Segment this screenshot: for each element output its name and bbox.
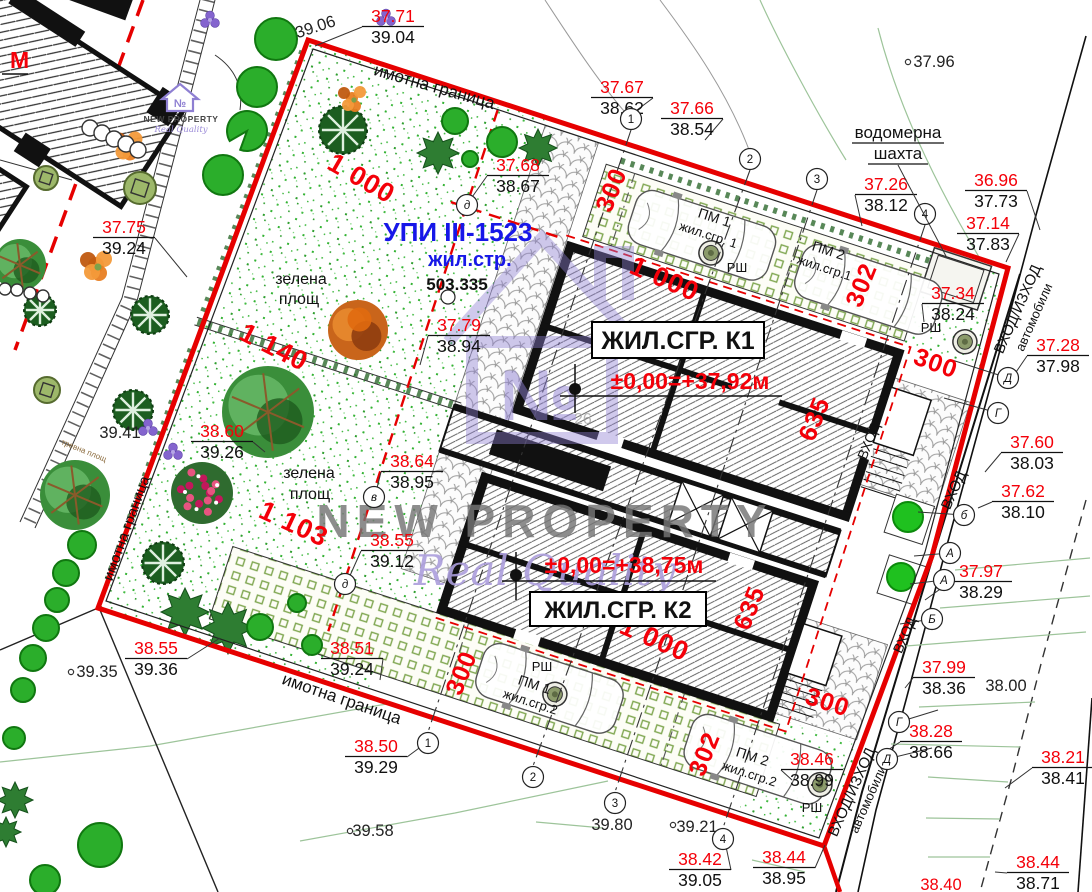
spot-elevation-pair: 37.9738.29 xyxy=(950,561,1012,602)
spot-elevation-pair: 37.7539.24 xyxy=(93,217,155,258)
svg-text:д: д xyxy=(342,579,348,591)
svg-text:37.26: 37.26 xyxy=(864,174,908,194)
axis-marker: 1 xyxy=(418,733,439,754)
svg-text:38.41: 38.41 xyxy=(1041,768,1085,788)
spot-elevation-pair: 37.2638.12 xyxy=(855,174,917,215)
np-logo-monogram: № xyxy=(174,98,186,110)
svg-text:37.60: 37.60 xyxy=(1010,432,1054,452)
circle-tree xyxy=(288,594,306,612)
svg-text:3: 3 xyxy=(612,798,618,810)
olive-tree xyxy=(124,172,156,204)
circle-tree xyxy=(11,678,35,702)
svg-text:38.36: 38.36 xyxy=(922,678,966,698)
spot-elevation-pair: 37.6238.10 xyxy=(992,481,1054,522)
upi-label: УПИ III-1523 xyxy=(384,217,533,247)
building-k2-label: ЖИЛ.СГР. К2 xyxy=(530,592,706,626)
spot-elevation-pair: 38.5539.36 xyxy=(125,638,187,679)
axis-marker: д xyxy=(335,574,356,595)
svg-text:38.94: 38.94 xyxy=(437,336,481,356)
spot-elevation: 39.80 xyxy=(591,816,632,834)
circle-tree xyxy=(68,531,96,559)
svg-text:38.12: 38.12 xyxy=(864,195,908,215)
circle-tree xyxy=(237,67,277,107)
svg-text:38.66: 38.66 xyxy=(909,742,953,762)
circle-tree xyxy=(78,823,122,867)
circle-tree xyxy=(3,727,25,749)
axis-marker: 2 xyxy=(740,149,761,170)
svg-text:37.83: 37.83 xyxy=(966,234,1010,254)
svg-text:37.99: 37.99 xyxy=(922,657,966,677)
svg-text:39.36: 39.36 xyxy=(134,659,178,679)
svg-text:37.34: 37.34 xyxy=(931,283,975,303)
svg-text:38.28: 38.28 xyxy=(909,721,953,741)
k1-level-text: ±0,00=+37,92м xyxy=(611,368,770,394)
axis-marker: 1 xyxy=(621,109,642,130)
spot-elevation-pair: 38.2138.41 xyxy=(1032,747,1092,788)
spot-elevation-pair: 38.4239.05 xyxy=(669,849,731,890)
axis-marker: Д xyxy=(998,368,1019,389)
svg-text:38.00: 38.00 xyxy=(985,677,1026,695)
svg-text:38.71: 38.71 xyxy=(1016,873,1060,892)
axis-marker: в xyxy=(364,487,385,508)
svg-text:б: б xyxy=(961,510,968,522)
spiky-tree xyxy=(417,132,459,174)
conifer-tree xyxy=(131,296,169,334)
ring-tree xyxy=(24,287,36,299)
building-k2-name: ЖИЛ.СГР. К2 xyxy=(543,597,691,624)
svg-text:37.14: 37.14 xyxy=(966,213,1010,233)
map-label: площ xyxy=(290,486,330,503)
circle-tree xyxy=(20,645,46,671)
site-plan-canvas: № 26 NEW PROPERTY Real Quality 37.7139.0… xyxy=(0,0,1092,892)
map-label: РШ xyxy=(532,659,553,674)
axis-marker: Г xyxy=(988,403,1009,424)
spot-elevation-pair: 37.9938.36 xyxy=(913,657,975,698)
svg-text:39.26: 39.26 xyxy=(200,442,244,462)
svg-text:Д: Д xyxy=(1002,373,1012,385)
bright-tree xyxy=(893,502,923,532)
map-label: зелена xyxy=(283,465,335,482)
olive-tree xyxy=(34,166,58,190)
watermark-number: 26 xyxy=(574,411,592,428)
map-label: РШ xyxy=(921,320,942,335)
building-k1-name: ЖИЛ.СГР. К1 xyxy=(600,327,754,355)
svg-text:39.12: 39.12 xyxy=(370,551,414,571)
svg-text:37.97: 37.97 xyxy=(959,561,1003,581)
axis-marker: 3 xyxy=(807,169,828,190)
spot-elevation-pair: 38.2838.66 xyxy=(900,721,962,762)
svg-text:38.95: 38.95 xyxy=(390,472,434,492)
svg-text:37.96: 37.96 xyxy=(913,53,954,71)
circle-tree xyxy=(33,615,59,641)
circle-tree xyxy=(45,588,69,612)
svg-text:37.79: 37.79 xyxy=(437,315,481,335)
area-label: 503.335 xyxy=(426,275,487,294)
svg-text:38.55: 38.55 xyxy=(134,638,178,658)
zoning-label: жил.стр. xyxy=(427,249,511,271)
circle-tree xyxy=(442,108,468,134)
svg-text:37.71: 37.71 xyxy=(371,6,415,26)
svg-text:38.03: 38.03 xyxy=(1010,453,1054,473)
spot-elevation-pair: 38.4438.95 xyxy=(753,847,815,888)
map-label: площ xyxy=(279,291,319,308)
svg-text:38.50: 38.50 xyxy=(354,736,398,756)
spot-elevation: 38.40 xyxy=(920,876,961,892)
svg-text:39.05: 39.05 xyxy=(678,870,722,890)
axis-marker: А xyxy=(934,570,955,591)
spot-elevation-pair: 37.6838.67 xyxy=(487,155,549,196)
svg-text:39.24: 39.24 xyxy=(102,238,146,258)
np-logo-tagline: Real Quality xyxy=(153,125,207,135)
spot-elevation-pair: 37.2837.98 xyxy=(1027,335,1089,376)
axis-marker: 4 xyxy=(915,204,936,225)
spot-elevation-pair: 37.1437.83 xyxy=(957,213,1019,254)
svg-text:39.35: 39.35 xyxy=(76,663,117,681)
mixed-tree xyxy=(40,460,110,530)
spot-elevation-pair: 38.5539.12 xyxy=(361,530,423,571)
svg-text:39.21: 39.21 xyxy=(676,818,717,836)
circle-tree xyxy=(203,155,243,195)
spot-elevation-pair: 37.6738.62 xyxy=(591,77,653,118)
ring-tree xyxy=(0,283,11,295)
svg-text:38.29: 38.29 xyxy=(959,582,1003,602)
spot-elevation: 39.41 xyxy=(99,424,140,442)
svg-text:Д: Д xyxy=(881,754,891,766)
spot-elevation-pair: 37.7139.04 xyxy=(362,6,424,47)
svg-text:3: 3 xyxy=(814,174,820,186)
svg-text:38.64: 38.64 xyxy=(390,451,434,471)
spot-elevation-pair: 37.7938.94 xyxy=(428,315,490,356)
svg-text:39.04: 39.04 xyxy=(371,27,415,47)
svg-text:38.51: 38.51 xyxy=(330,638,374,658)
axis-marker: 2 xyxy=(523,767,544,788)
circle-tree xyxy=(53,560,79,586)
ring-tree xyxy=(37,290,49,302)
svg-text:38.44: 38.44 xyxy=(1016,852,1060,872)
axis-marker: 4 xyxy=(713,829,734,850)
water-shaft-line2: шахта xyxy=(874,144,923,163)
spot-elevation-pair: 38.4438.71 xyxy=(1007,852,1069,892)
svg-text:38.21: 38.21 xyxy=(1041,747,1085,767)
spot-elevation: 38.00 xyxy=(985,677,1026,695)
bright-tree xyxy=(887,563,915,591)
svg-text:Г: Г xyxy=(995,408,1002,420)
svg-text:4: 4 xyxy=(720,834,727,846)
axis-marker: Г xyxy=(889,712,910,733)
spot-elevation-pair: 37.3438.24 xyxy=(922,283,984,324)
svg-text:38.60: 38.60 xyxy=(200,421,244,441)
spot-elevation-pair: 38.6438.95 xyxy=(381,451,443,492)
circle-tree xyxy=(247,614,273,640)
conifer-tree xyxy=(142,542,184,584)
ring-tree xyxy=(11,284,23,296)
svg-text:38.95: 38.95 xyxy=(762,868,806,888)
svg-text:39.80: 39.80 xyxy=(591,816,632,834)
map-label: РШ xyxy=(802,800,823,815)
k2-level-text: ±0,00=+38,75м xyxy=(545,552,704,578)
svg-text:38.42: 38.42 xyxy=(678,849,722,869)
circle-tree xyxy=(255,18,297,60)
svg-text:37.68: 37.68 xyxy=(496,155,540,175)
svg-text:А: А xyxy=(939,575,948,587)
svg-text:39.58: 39.58 xyxy=(352,822,393,840)
svg-text:в: в xyxy=(371,492,377,504)
svg-text:1: 1 xyxy=(628,114,634,126)
svg-text:36.96: 36.96 xyxy=(974,170,1018,190)
svg-text:Б: Б xyxy=(928,614,936,626)
spot-elevation-pair: 38.5139.24 xyxy=(321,638,383,679)
water-shaft-line1: водомерна xyxy=(855,123,942,142)
svg-text:37.98: 37.98 xyxy=(1036,356,1080,376)
spot-elevation-pair: 38.5039.29 xyxy=(345,736,407,777)
svg-text:4: 4 xyxy=(922,209,929,221)
svg-text:38.67: 38.67 xyxy=(496,176,540,196)
svg-text:37.28: 37.28 xyxy=(1036,335,1080,355)
axis-marker: б xyxy=(954,505,975,526)
axis-marker: 3 xyxy=(605,793,626,814)
corner-m-label: М xyxy=(10,47,29,73)
svg-text:38.55: 38.55 xyxy=(370,530,414,550)
spot-elevation-pair: 38.6039.26 xyxy=(191,421,253,462)
svg-text:39.29: 39.29 xyxy=(354,757,398,777)
svg-text:38.10: 38.10 xyxy=(1001,502,1045,522)
svg-text:38.44: 38.44 xyxy=(762,847,806,867)
svg-text:1: 1 xyxy=(425,738,431,750)
svg-text:37.73: 37.73 xyxy=(974,191,1018,211)
svg-text:37.66: 37.66 xyxy=(670,98,714,118)
spot-elevation: 39.21 xyxy=(670,818,717,836)
np-logo-brand: NEW PROPERTY xyxy=(144,114,219,124)
spot-elevation: 37.96 xyxy=(905,53,954,71)
svg-text:2: 2 xyxy=(747,154,753,166)
axis-marker: А xyxy=(940,543,961,564)
svg-text:А: А xyxy=(945,548,954,560)
map-label: РШ xyxy=(727,260,748,275)
circle-tree xyxy=(30,865,60,892)
building-k1-label: ЖИЛ.СГР. К1 xyxy=(592,322,764,358)
axis-marker: Д xyxy=(877,749,898,770)
svg-text:38.46: 38.46 xyxy=(790,749,834,769)
site-plan: № 26 NEW PROPERTY Real Quality 37.7139.0… xyxy=(0,0,1092,892)
olive-tree xyxy=(34,377,60,403)
svg-text:2: 2 xyxy=(530,772,536,784)
spot-elevation-pair: 38.4638.99 xyxy=(781,749,843,790)
svg-text:д: д xyxy=(464,200,470,212)
circle-tree xyxy=(302,635,322,655)
axis-marker: Б xyxy=(922,609,943,630)
svg-text:39.41: 39.41 xyxy=(99,424,140,442)
spot-elevation: 39.58 xyxy=(347,822,393,840)
svg-text:38.54: 38.54 xyxy=(670,119,714,139)
svg-text:38.40: 38.40 xyxy=(920,876,961,892)
svg-text:37.62: 37.62 xyxy=(1001,481,1045,501)
circle-tree xyxy=(462,151,478,167)
axis-marker: д xyxy=(457,195,478,216)
spot-elevation-pair: 36.9637.73 xyxy=(965,170,1027,211)
pink-tree xyxy=(171,462,233,524)
spot-elevation-pair: 37.6038.03 xyxy=(1001,432,1063,473)
ring-tree xyxy=(130,142,146,158)
svg-text:39.24: 39.24 xyxy=(330,659,374,679)
spot-elevation: 39.35 xyxy=(68,663,117,681)
svg-text:38.99: 38.99 xyxy=(790,770,834,790)
circle-tree xyxy=(487,127,517,157)
conifer-tree xyxy=(319,106,367,154)
orange-tree xyxy=(328,300,388,360)
svg-text:37.67: 37.67 xyxy=(600,77,644,97)
svg-text:37.75: 37.75 xyxy=(102,217,146,237)
map-label: зелена xyxy=(275,271,327,288)
spot-elevation-pair: 37.6638.54 xyxy=(661,98,723,139)
svg-text:Г: Г xyxy=(896,717,903,729)
